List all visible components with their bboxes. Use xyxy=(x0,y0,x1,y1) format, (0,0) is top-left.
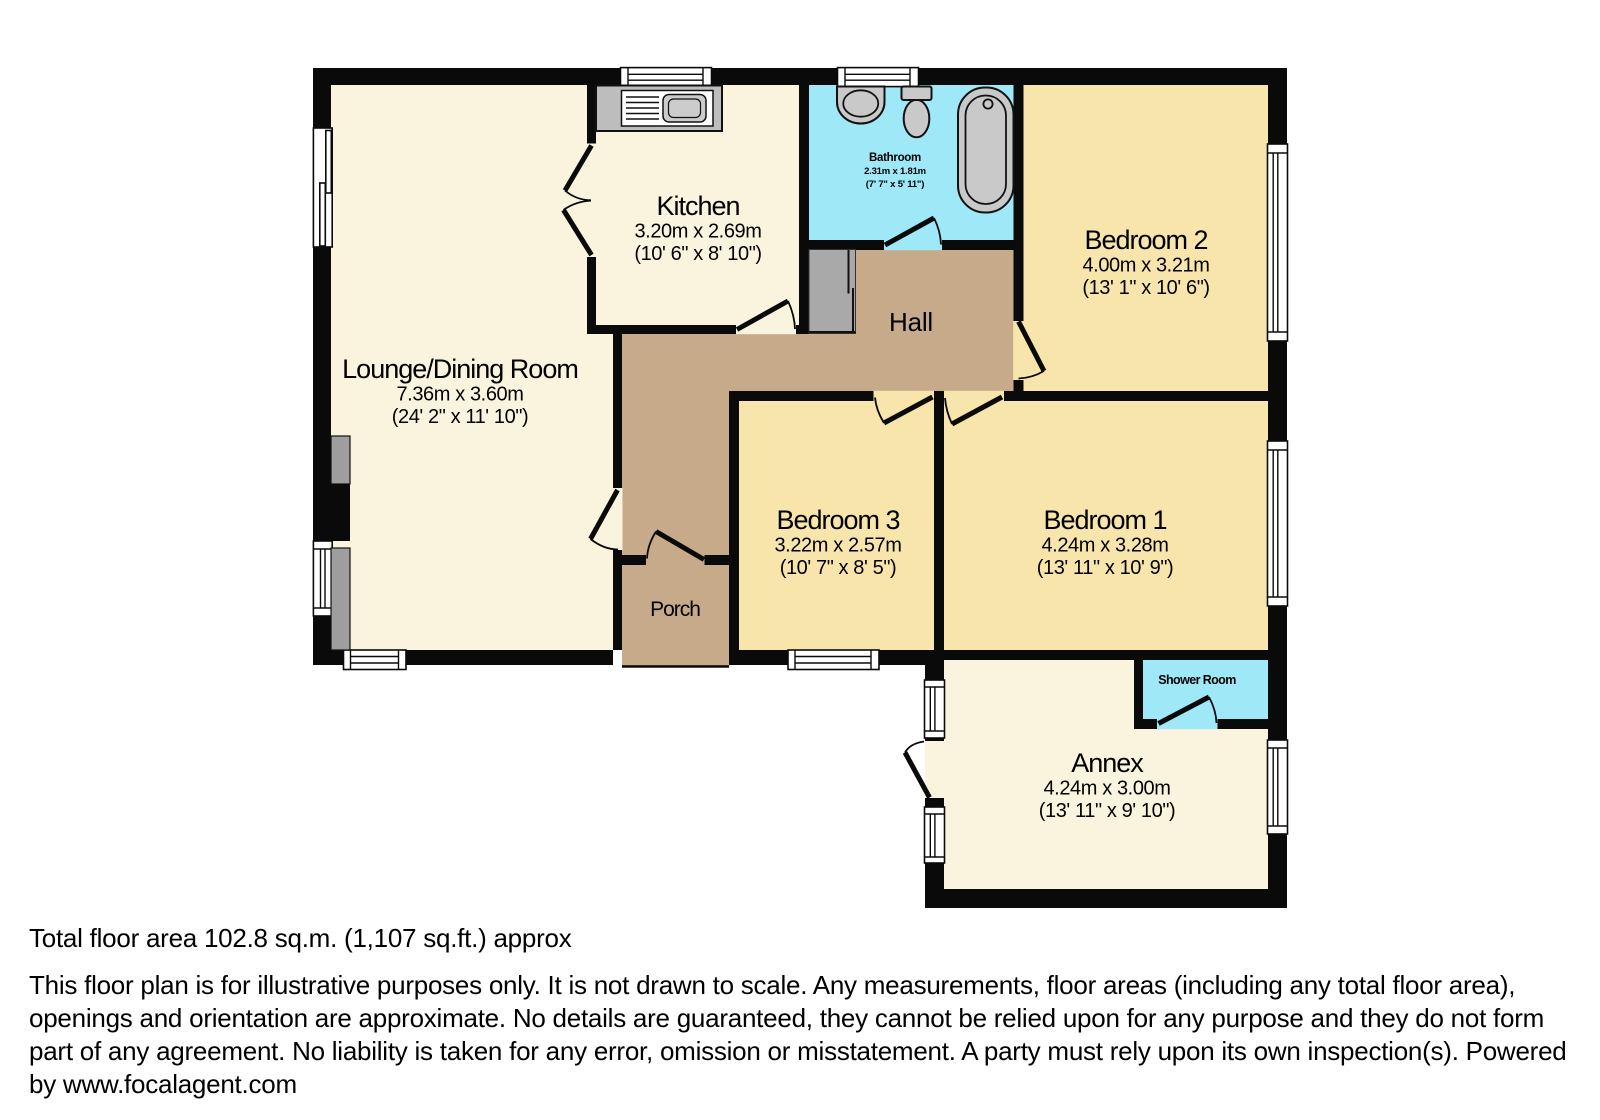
svg-text:(24' 2" x 11' 10"): (24' 2" x 11' 10") xyxy=(392,406,529,428)
svg-text:Kitchen: Kitchen xyxy=(656,191,739,221)
svg-text:3.20m x 2.69m: 3.20m x 2.69m xyxy=(634,221,761,243)
svg-text:3.22m x 2.57m: 3.22m x 2.57m xyxy=(774,535,901,557)
svg-text:Total floor area 102.8 sq.m. (: Total floor area 102.8 sq.m. (1,107 sq.f… xyxy=(29,923,572,953)
svg-text:(13' 1" x 10' 6"): (13' 1" x 10' 6") xyxy=(1082,277,1209,299)
svg-text:(10' 6" x 8' 10"): (10' 6" x 8' 10") xyxy=(634,243,761,265)
svg-text:(7' 7" x 5' 11"): (7' 7" x 5' 11") xyxy=(866,179,924,190)
svg-text:Bathroom: Bathroom xyxy=(869,152,921,164)
svg-text:(13' 11" x 9' 10"): (13' 11" x 9' 10") xyxy=(1039,800,1176,822)
svg-text:4.24m x 3.00m: 4.24m x 3.00m xyxy=(1043,778,1170,800)
svg-text:(13' 11" x 10' 9"): (13' 11" x 10' 9") xyxy=(1037,557,1174,579)
svg-text:Bedroom 2: Bedroom 2 xyxy=(1084,225,1207,255)
svg-text:4.00m x 3.21m: 4.00m x 3.21m xyxy=(1082,255,1209,277)
svg-text:This floor plan is for illustr: This floor plan is for illustrative purp… xyxy=(29,970,1515,1000)
svg-text:openings and orientation are a: openings and orientation are approximate… xyxy=(29,1003,1544,1033)
svg-text:Shower Room: Shower Room xyxy=(1158,673,1236,687)
svg-text:7.36m x 3.60m: 7.36m x 3.60m xyxy=(396,384,523,406)
svg-text:Lounge/Dining Room: Lounge/Dining Room xyxy=(342,354,578,384)
svg-text:Bedroom 3: Bedroom 3 xyxy=(776,505,899,535)
svg-text:Hall: Hall xyxy=(889,307,933,337)
svg-text:by www.focalagent.com: by www.focalagent.com xyxy=(29,1069,297,1099)
svg-text:Annex: Annex xyxy=(1071,748,1144,778)
svg-text:(10' 7" x 8' 5"): (10' 7" x 8' 5") xyxy=(780,557,897,579)
svg-text:part of any agreement. No liab: part of any agreement. No liability is t… xyxy=(29,1036,1567,1066)
svg-text:2.31m x 1.81m: 2.31m x 1.81m xyxy=(864,166,926,177)
svg-text:4.24m x 3.28m: 4.24m x 3.28m xyxy=(1041,535,1168,557)
svg-text:Porch: Porch xyxy=(650,598,700,621)
svg-text:Bedroom 1: Bedroom 1 xyxy=(1043,505,1166,535)
